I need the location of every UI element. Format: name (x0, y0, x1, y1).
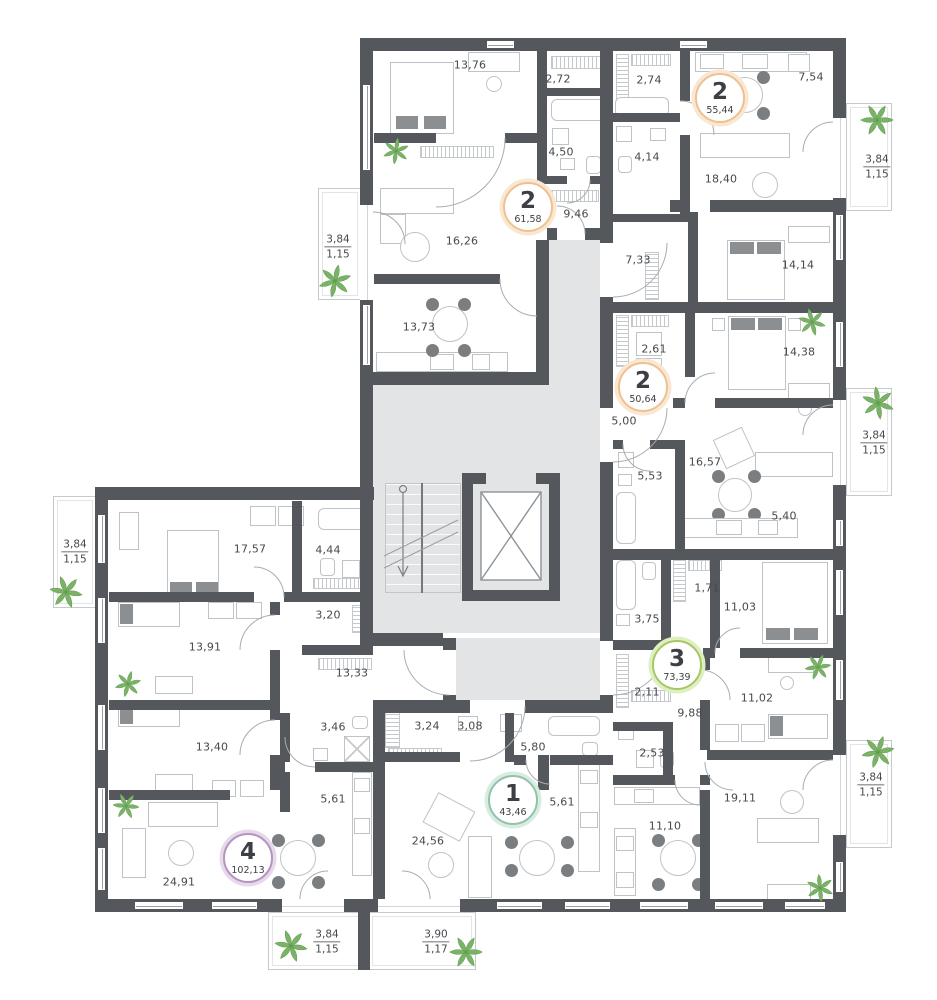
furniture-accent (730, 242, 754, 254)
wall (688, 212, 698, 302)
room-area-label: 4,14 (634, 151, 659, 164)
furniture-accent (731, 318, 755, 330)
kitchen-counter (614, 787, 700, 805)
armchair (752, 172, 778, 198)
wardrobe (715, 724, 739, 742)
window (565, 902, 610, 909)
window (98, 515, 105, 563)
toilet (618, 156, 632, 173)
bathtub (616, 492, 636, 544)
room-area-label: 16,26 (446, 235, 479, 248)
desk (767, 884, 811, 900)
fridge (580, 770, 598, 784)
sink (472, 354, 490, 370)
window (363, 85, 370, 170)
wall (700, 790, 710, 899)
room-area-label: 5,61 (549, 796, 574, 809)
bathtub (548, 716, 600, 736)
wall (600, 462, 613, 641)
balcony-area-label: 3,84 1,15 (857, 770, 884, 799)
sink (618, 474, 632, 486)
nightstand (712, 318, 725, 331)
wall (703, 648, 715, 658)
shower (344, 736, 370, 762)
wall (385, 752, 460, 762)
stove (716, 520, 742, 535)
room-area-label: 19,11 (724, 792, 757, 805)
balcony-depth: 1,15 (862, 445, 885, 457)
room-area-label: 5,00 (611, 415, 636, 428)
washer (618, 452, 634, 468)
room-area-label: 11,02 (741, 692, 774, 705)
apartment-badge[interactable]: 3 73,39 (652, 640, 702, 690)
room-area-label: 1,71 (694, 582, 719, 595)
chair (757, 107, 770, 120)
chair (458, 298, 471, 311)
sofa (755, 452, 833, 477)
wall (650, 440, 685, 449)
desk (788, 226, 830, 243)
balcony-area: 3,90 (422, 927, 449, 942)
dining-table (519, 840, 555, 876)
window (680, 41, 707, 48)
window (836, 660, 843, 700)
room-area-label: 13,76 (454, 59, 487, 72)
balcony-area-label: 3,90 1,17 (422, 927, 449, 956)
wall (302, 645, 373, 655)
wall (358, 912, 370, 970)
desk (768, 656, 814, 673)
balcony-area: 3,84 (313, 927, 340, 942)
bookshelf (122, 828, 146, 878)
furniture-accent (766, 628, 790, 640)
apartment-total-area: 102,13 (231, 865, 264, 876)
room-area-label: 13,33 (336, 667, 369, 680)
chair (505, 864, 518, 877)
room-area-label: 5,80 (520, 741, 545, 754)
room-area-label: 3,20 (315, 609, 340, 622)
sink (313, 748, 328, 761)
wall (585, 228, 600, 240)
wardrobe (741, 724, 765, 742)
wall (270, 602, 280, 615)
room-area-label: 18,40 (705, 173, 738, 186)
wall (373, 372, 536, 385)
washer (616, 126, 632, 142)
chair (652, 878, 665, 891)
nightstand (788, 318, 801, 331)
wardrobe (420, 146, 494, 158)
room-area-label: 3,46 (320, 721, 345, 734)
washer (552, 128, 569, 145)
wall (613, 775, 675, 785)
room-area-label: 3,08 (457, 720, 482, 733)
room-area-label: 3,75 (634, 613, 659, 626)
room-area-label: 7,33 (625, 254, 650, 267)
apartment-total-area: 43,46 (499, 807, 526, 818)
wall (707, 750, 833, 760)
window (98, 598, 105, 643)
furniture-accent (120, 604, 133, 624)
desk (119, 512, 139, 550)
bathtub (616, 560, 636, 610)
window (487, 41, 514, 48)
chair (757, 71, 770, 84)
wall (538, 755, 549, 790)
wall (613, 214, 680, 222)
stove (742, 54, 768, 69)
wall (547, 176, 567, 184)
apartment-badge[interactable]: 1 43,46 (488, 775, 538, 825)
wall (613, 113, 680, 122)
wall (600, 297, 613, 408)
wall (315, 762, 373, 772)
washer (342, 560, 360, 578)
apartment-badge[interactable]: 2 50,64 (618, 362, 668, 412)
wall (547, 88, 600, 96)
chair (486, 76, 502, 92)
wall (590, 176, 600, 184)
balcony-door-opening (833, 400, 846, 485)
desk (155, 676, 193, 694)
apartment-rooms-count: 2 (520, 190, 536, 213)
sink (616, 614, 630, 626)
balcony-area: 3,84 (324, 232, 351, 247)
sink (560, 158, 575, 170)
wardrobe (616, 654, 629, 708)
wall (547, 228, 557, 240)
wall (280, 713, 290, 762)
dining-table (280, 840, 316, 876)
apartment-badge[interactable]: 2 55,44 (695, 73, 745, 123)
balcony-area: 3,84 (857, 770, 884, 785)
wall (661, 560, 671, 640)
stair-divider (421, 483, 423, 593)
balcony-door-opening (833, 755, 846, 835)
room-area-label: 11,03 (724, 601, 757, 614)
sofa (757, 818, 819, 843)
window (497, 902, 542, 909)
chair (272, 834, 285, 847)
sofa (700, 133, 790, 158)
window (98, 705, 105, 750)
wall (514, 755, 526, 765)
wall (525, 700, 613, 713)
wardrobe (673, 560, 686, 602)
toilet (642, 562, 656, 580)
room-area-label: 4,50 (548, 146, 573, 159)
furniture-accent (770, 716, 783, 736)
wall (373, 713, 385, 899)
window (135, 902, 183, 909)
room-area-label: 3,24 (414, 720, 439, 733)
wall (443, 695, 456, 713)
wall (550, 755, 613, 765)
balcony-area-label: 3,84 1,15 (860, 428, 887, 457)
wall (373, 700, 443, 713)
apartment-total-area: 73,39 (663, 672, 690, 683)
wardrobe (236, 602, 262, 619)
wall (710, 560, 720, 648)
staircase (385, 483, 461, 593)
apartment-total-area: 55,44 (706, 105, 733, 116)
furniture-accent (794, 628, 818, 640)
wall (270, 650, 280, 700)
wall (374, 133, 436, 143)
chair (458, 344, 471, 357)
apartment-rooms-count: 2 (635, 370, 651, 393)
room-area-label: 13,73 (403, 321, 436, 334)
balcony-depth: 1,15 (326, 249, 349, 261)
sofa (380, 188, 454, 214)
toilet (582, 742, 598, 756)
wall (613, 440, 623, 449)
wall (710, 200, 833, 212)
corridor-floor (549, 240, 600, 385)
chair (652, 834, 665, 847)
room-area-label: 24,56 (412, 835, 445, 848)
wall (613, 302, 833, 313)
sofa (148, 802, 218, 827)
wall (675, 449, 685, 549)
wall (715, 398, 833, 408)
wall (95, 487, 374, 500)
room-area-label: 9,46 (563, 208, 588, 221)
chair (748, 470, 761, 483)
wall (360, 38, 846, 51)
wall (673, 398, 685, 408)
toilet (586, 156, 601, 174)
room-area-label: 16,57 (689, 456, 722, 469)
bathtub (551, 99, 607, 121)
balcony-area: 3,84 (863, 152, 890, 167)
wall (600, 51, 613, 243)
fridge (616, 872, 634, 888)
apartment-rooms-count: 4 (240, 841, 256, 864)
apartment-total-area: 61,58 (514, 214, 541, 225)
dining-table (660, 840, 696, 876)
room-area-label: 2,53 (639, 747, 664, 760)
wall (740, 648, 833, 658)
floor-plan: 13,76 2,72 4,50 9,46 16,26 13,73 2,74 7,… (0, 0, 937, 1000)
wall (284, 592, 373, 602)
window (836, 570, 843, 615)
wardrobe (616, 315, 629, 367)
room-area-label: 4,44 (315, 544, 340, 557)
room-area-label: 14,38 (783, 346, 816, 359)
coffee-table (400, 232, 430, 262)
balcony-area-label: 3,84 1,15 (313, 927, 340, 956)
room-area-label: 7,54 (798, 71, 823, 84)
apartment-badge[interactable]: 2 61,58 (503, 182, 553, 232)
room-area-label: 5,53 (637, 470, 662, 483)
window (836, 322, 843, 367)
furniture-accent (757, 242, 781, 254)
room-area-label: 17,57 (234, 543, 267, 556)
room-area-label: 11,10 (649, 820, 682, 833)
chair (426, 298, 439, 311)
chair (505, 836, 518, 849)
sink (634, 789, 654, 803)
chair (561, 836, 574, 849)
window (640, 902, 688, 909)
room-area-label: 24,91 (163, 876, 196, 889)
wall (685, 302, 695, 377)
stove (354, 778, 370, 792)
room-area-label: 2,61 (641, 343, 666, 356)
stove (616, 836, 634, 851)
wall (292, 501, 302, 592)
balcony-depth: 1,15 (315, 944, 338, 956)
stove (580, 812, 598, 828)
balcony-depth: 1,15 (859, 787, 882, 799)
wall (505, 752, 514, 762)
furniture-accent (758, 318, 782, 330)
corridor-floor (456, 638, 600, 700)
balcony-door-opening (360, 205, 373, 300)
apartment-rooms-count: 1 (505, 783, 521, 806)
wall (536, 240, 549, 385)
window (715, 902, 763, 909)
apartment-total-area: 50,64 (629, 394, 656, 405)
chair (712, 470, 725, 483)
apartment-rooms-count: 3 (669, 648, 685, 671)
wall (549, 473, 560, 601)
desk (788, 383, 830, 399)
window (98, 788, 105, 833)
wall (462, 473, 473, 601)
window (785, 902, 825, 909)
wall (270, 700, 280, 720)
wall (462, 473, 486, 484)
balcony-area-label: 3,84 1,15 (324, 232, 351, 261)
wall (670, 200, 682, 212)
elevator-door-gap (486, 473, 536, 484)
fridge (788, 54, 810, 72)
window (98, 848, 105, 890)
sink (700, 54, 724, 69)
room-area-label: 5,61 (320, 793, 345, 806)
wardrobe (631, 54, 671, 66)
toilet (352, 716, 368, 729)
balcony-area: 3,84 (61, 537, 88, 552)
armchair (780, 790, 804, 814)
wardrobe (551, 56, 601, 69)
room-area-label: 13,40 (196, 741, 229, 754)
wardrobe (208, 602, 234, 619)
wall (270, 755, 280, 790)
room-area-label: 2,72 (545, 73, 570, 86)
sink (650, 128, 666, 141)
wall (109, 700, 270, 710)
wall (505, 133, 537, 143)
wardrobe (385, 710, 400, 748)
apartment-badge[interactable]: 4 102,13 (223, 833, 273, 883)
chair (780, 676, 794, 690)
room-area-label: 14,14 (782, 259, 815, 272)
room-area-label: 2,11 (634, 686, 659, 699)
chair (561, 864, 574, 877)
balcony-door-opening (833, 118, 846, 198)
balcony-area-label: 3,84 1,15 (61, 537, 88, 566)
chair (272, 876, 285, 889)
wall (462, 590, 560, 601)
fridge (354, 818, 370, 834)
armchair (428, 852, 454, 878)
balcony-area-label: 3,84 1,15 (863, 152, 890, 181)
chair (426, 344, 439, 357)
wall (109, 592, 254, 602)
window (212, 902, 257, 909)
wardrobe (631, 315, 669, 327)
wall (456, 700, 470, 713)
wall (109, 790, 230, 800)
window (836, 520, 843, 546)
window (836, 215, 843, 260)
room-area-label: 9,88 (677, 707, 702, 720)
balcony-depth: 1,15 (865, 169, 888, 181)
window (363, 305, 370, 365)
wall (536, 473, 560, 484)
wardrobe (250, 506, 276, 526)
balcony-door-opening (282, 899, 344, 912)
furniture-accent (424, 116, 446, 129)
tv-cabinet (468, 836, 492, 898)
chair (312, 876, 325, 889)
wall (360, 500, 373, 633)
armchair (168, 840, 194, 866)
wall (613, 549, 833, 560)
wall (537, 51, 547, 184)
balcony-depth: 1,17 (424, 944, 447, 956)
chair (312, 834, 325, 847)
wall (680, 51, 690, 101)
balcony-door-opening (378, 899, 460, 912)
dining-table (718, 478, 752, 512)
furniture-accent (396, 116, 418, 129)
balcony-depth: 1,15 (63, 554, 86, 566)
wall (374, 274, 500, 284)
window (836, 862, 843, 892)
apartment-rooms-count: 2 (712, 81, 728, 104)
wall (280, 762, 285, 772)
wall (700, 775, 710, 785)
room-area-label: 5,40 (771, 510, 796, 523)
toilet (320, 558, 335, 576)
wardrobe (240, 780, 264, 797)
room-area-label: 13,91 (189, 641, 222, 654)
dining-table (432, 306, 468, 342)
wall (443, 638, 456, 650)
balcony-area: 3,84 (860, 428, 887, 443)
wall (280, 772, 290, 812)
room-area-label: 2,74 (636, 74, 661, 87)
wardrobe (551, 190, 599, 202)
